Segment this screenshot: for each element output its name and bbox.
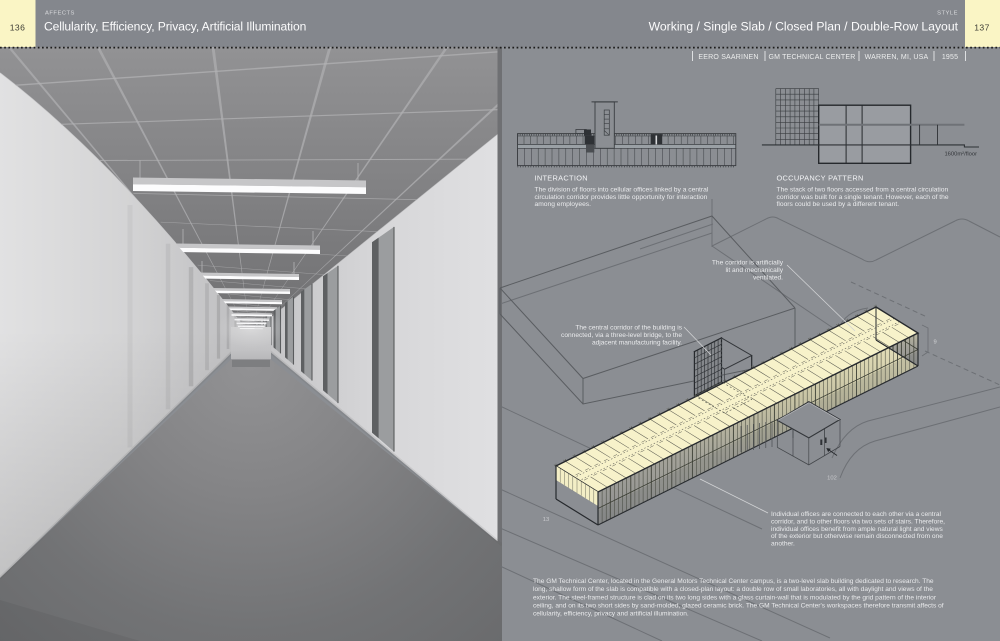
svg-text:STYLE: STYLE [937, 11, 958, 17]
svg-text:GM TECHNICAL CENTER: GM TECHNICAL CENTER [768, 54, 855, 61]
svg-text:exterior. The steel-framed str: exterior. The steel-framed structure is … [533, 594, 937, 601]
svg-text:The GM Technical Center, locat: The GM Technical Center, located in the … [533, 578, 934, 585]
svg-text:corridor, and to other floors: corridor, and to other floors via two se… [771, 518, 945, 525]
svg-text:EERO SAARINEN: EERO SAARINEN [698, 54, 758, 61]
svg-text:adjacent manufacturing facilit: adjacent manufacturing facility. [592, 340, 682, 347]
svg-text:of the exterior but otherwise: of the exterior but otherwise remain dis… [771, 533, 943, 540]
svg-text:102: 102 [827, 476, 837, 482]
svg-text:ventilated.: ventilated. [753, 275, 783, 282]
svg-text:another.: another. [771, 541, 795, 548]
svg-text:136: 136 [10, 23, 26, 33]
svg-text:floors could be used by a diff: floors could be used by a different tena… [777, 201, 900, 208]
svg-text:cellularity, efficiency, priva: cellularity, efficiency, privacy and art… [533, 611, 689, 618]
svg-text:ceiling, and on its two short: ceiling, and on its two short sides by s… [533, 602, 944, 609]
svg-text:long, shallow form of the slab: long, shallow form of the slab is compat… [533, 586, 933, 593]
svg-text:13: 13 [543, 517, 549, 523]
svg-text:The stack of two floors access: The stack of two floors accessed from a … [777, 187, 949, 194]
svg-text:lit and mechanically: lit and mechanically [725, 267, 783, 274]
svg-text:9: 9 [934, 340, 937, 346]
svg-text:circulation corridor provides: circulation corridor provides little opp… [535, 194, 708, 201]
svg-text:The corridor is artificially: The corridor is artificially [712, 260, 784, 267]
svg-text:1600m²/floor: 1600m²/floor [944, 152, 977, 158]
svg-text:individual offices benefit fro: individual offices benefit from ample na… [771, 526, 943, 533]
svg-text:AFFECTS: AFFECTS [45, 11, 75, 17]
svg-text:1955: 1955 [942, 54, 958, 61]
svg-text:Working / Single Slab / Closed: Working / Single Slab / Closed Plan / Do… [649, 20, 959, 34]
svg-text:corridor was built for a singl: corridor was built for a single tenant. … [777, 194, 949, 201]
svg-text:WARREN, MI, USA: WARREN, MI, USA [865, 54, 929, 61]
svg-text:Cellularity, Efficiency, Priva: Cellularity, Efficiency, Privacy, Artifi… [44, 20, 306, 34]
svg-text:OCCUPANCY PATTERN: OCCUPANCY PATTERN [777, 174, 864, 183]
svg-text:connected, via a three-level b: connected, via a three-level bridge, to … [561, 332, 682, 339]
svg-text:Individual offices are connect: Individual offices are connected to each… [771, 511, 941, 518]
svg-text:The central corridor of the bu: The central corridor of the building is [575, 325, 682, 332]
svg-text:137: 137 [974, 23, 990, 33]
svg-text:The division of floors into ce: The division of floors into cellular off… [535, 187, 709, 194]
svg-text:INTERACTION: INTERACTION [535, 174, 588, 183]
svg-text:among employees.: among employees. [535, 201, 592, 208]
